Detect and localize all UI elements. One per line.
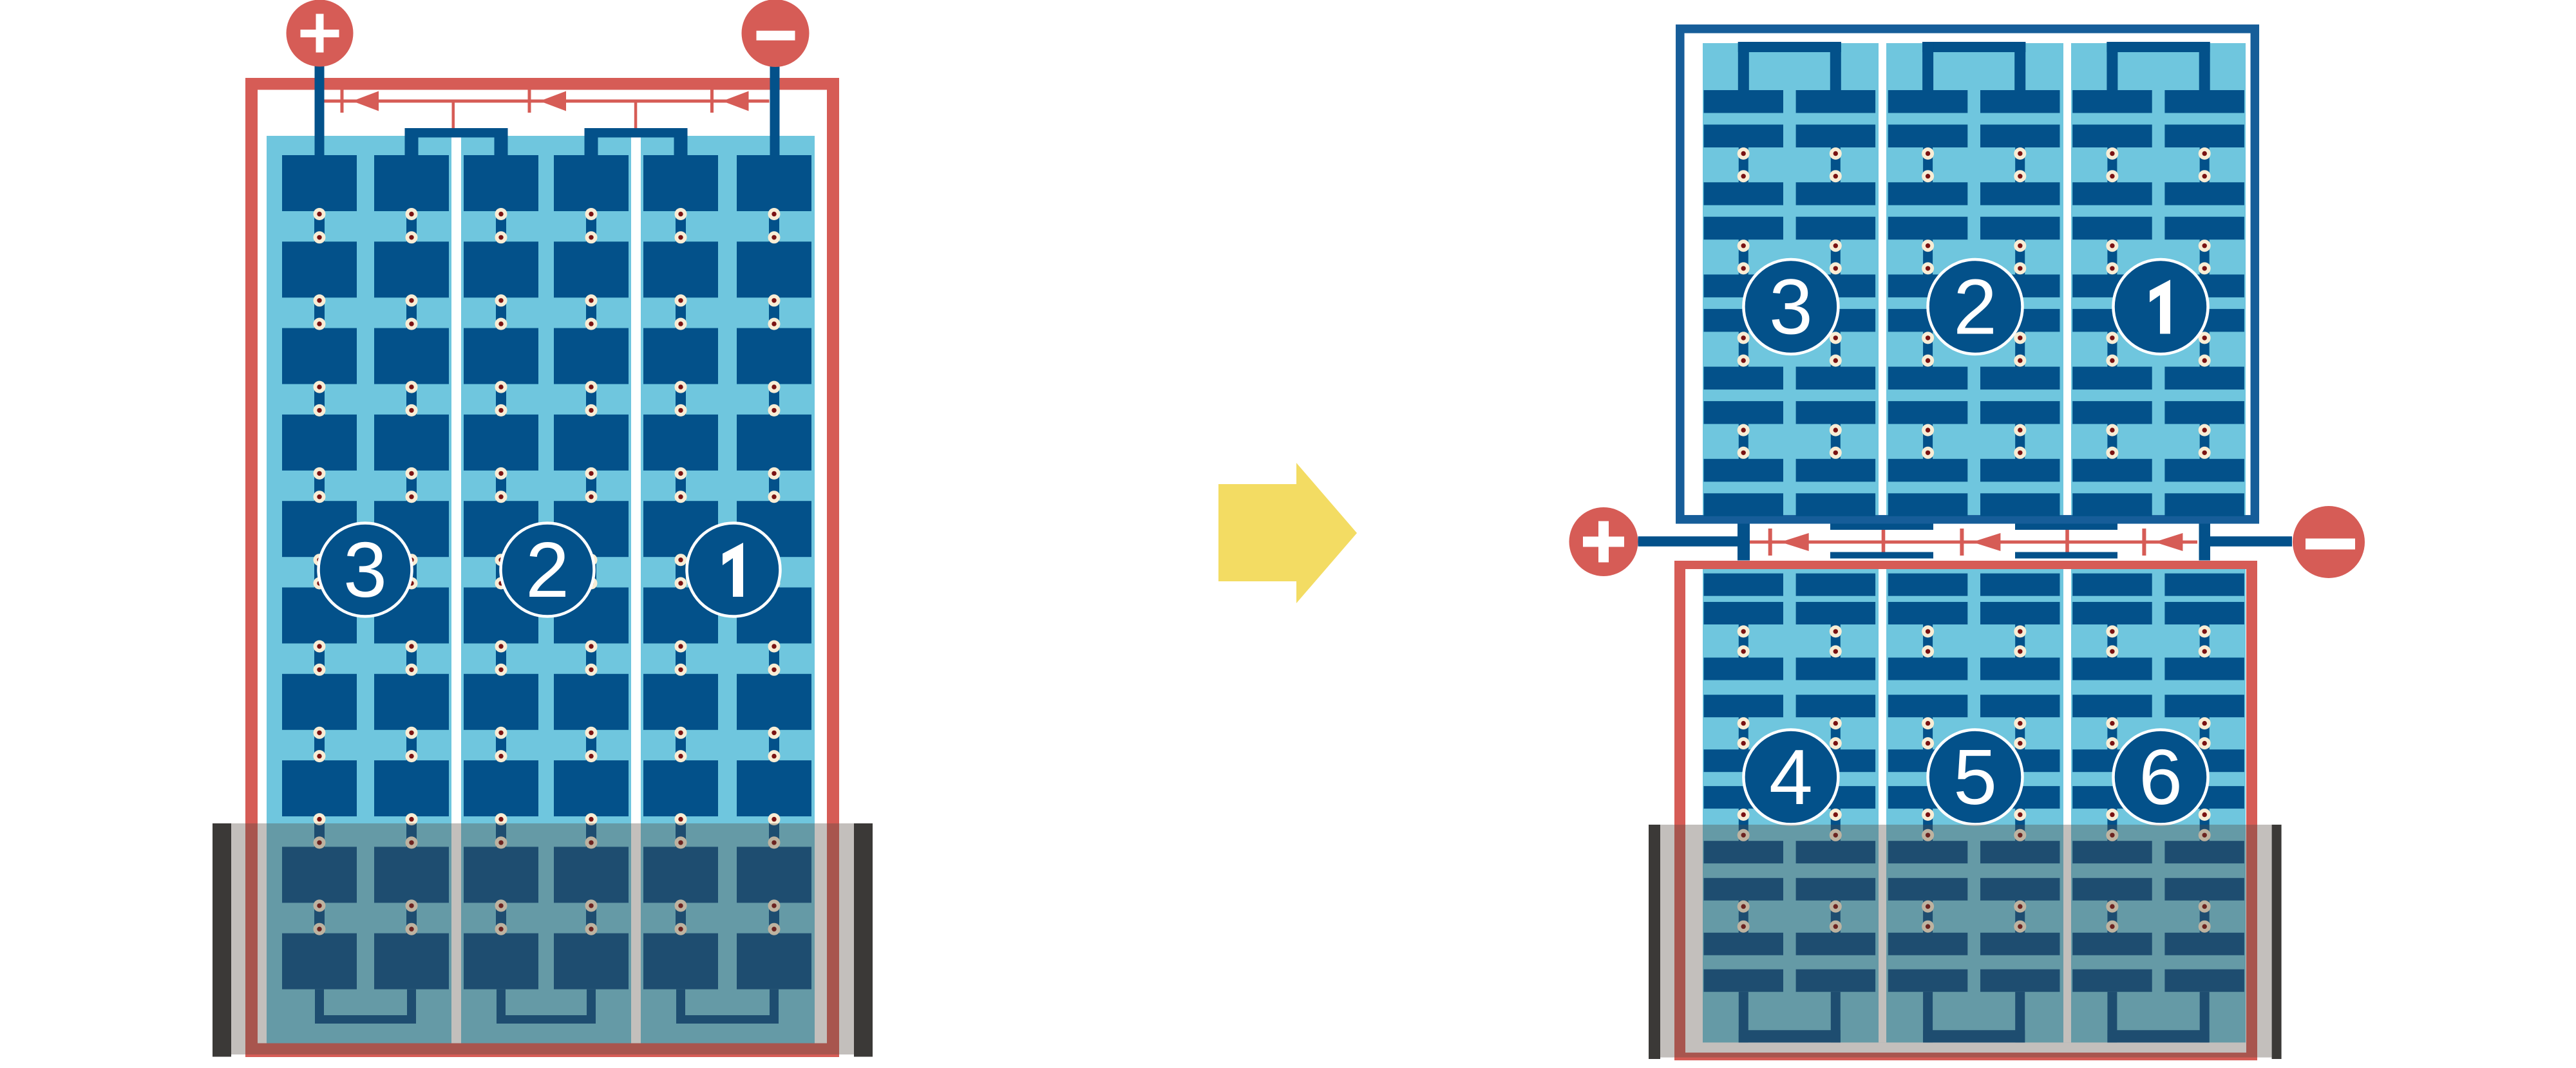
svg-text:4: 4 xyxy=(1769,733,1813,821)
svg-text:3: 3 xyxy=(1769,263,1813,351)
svg-text:3: 3 xyxy=(343,526,387,614)
svg-text:6: 6 xyxy=(2139,733,2183,821)
svg-text:5: 5 xyxy=(1953,733,1997,821)
svg-text:2: 2 xyxy=(526,526,569,614)
svg-text:2: 2 xyxy=(1953,263,1997,351)
